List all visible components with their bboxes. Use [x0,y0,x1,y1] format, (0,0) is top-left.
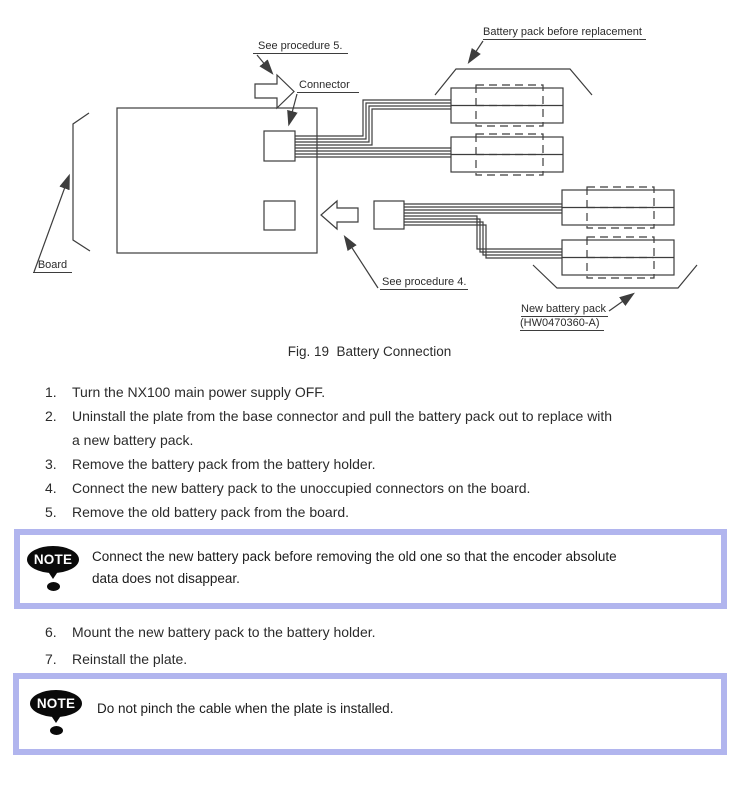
label-see-procedure-4: See procedure 4. [380,276,468,290]
step-text: Turn the NX100 main power supply OFF. [72,380,612,404]
label-board: Board [33,259,72,273]
connector-unoccupied [264,201,295,230]
figure-caption: Fig. 19 Battery Connection [0,344,739,359]
manual-page: See procedure 5. Connector Battery pack … [0,0,739,787]
step-1: 1. Turn the NX100 main power supply OFF. [45,380,612,404]
bracket-board [73,113,90,251]
note-2-line-1: Do not pinch the cable when the plate is… [97,698,707,720]
step-2: 2. Uninstall the plate from the base con… [45,404,612,452]
leader-see-procedure-4 [345,237,378,288]
step-number: 1. [45,380,72,404]
new-pack-connector [374,201,404,229]
step-number: 6. [45,619,72,646]
label-connector: Connector [297,79,359,93]
battery-pack-new-1 [562,187,674,228]
battery-pack-old-2 [451,134,563,175]
step-text: Uninstall the plate from the base connec… [72,404,612,428]
leader-new-battery-pack [609,294,633,311]
note-bubble-dot-icon [50,726,63,735]
step-6: 6. Mount the new battery pack to the bat… [45,619,376,646]
step-text: Connect the new battery pack to the unoc… [72,476,612,500]
procedure4-block-arrow-icon [321,201,358,229]
label-new-battery-pack: New battery pack [521,303,608,317]
step-5: 5. Remove the old battery pack from the … [45,500,612,524]
step-number: 4. [45,476,72,500]
note-icon: NOTE [27,546,79,591]
step-text: a new battery pack. [72,428,612,452]
step-text: Remove the battery pack from the battery… [72,452,612,476]
note-bubble-dot-icon [47,582,60,591]
wires-old-packs [295,100,451,157]
step-number: 3. [45,452,72,476]
procedure-steps-6-7: 6. Mount the new battery pack to the bat… [45,619,376,673]
label-battery-pack-before-replacement: Battery pack before replacement [483,26,646,40]
step-3: 3. Remove the battery pack from the batt… [45,452,612,476]
note-2-text: Do not pinch the cable when the plate is… [97,698,707,720]
note-1-line-2: data does not disappear. [92,568,712,590]
step-number: 7. [45,646,72,673]
note-bubble-icon: NOTE [30,690,82,717]
label-see-procedure-5: See procedure 5. [253,40,348,54]
note-icon: NOTE [30,690,82,735]
note-bubble-tail-icon [47,570,59,579]
procedure5-block-arrow-icon [255,75,294,108]
board-outline [117,108,317,253]
note-bubble-icon: NOTE [27,546,79,573]
connector-occupied [264,131,295,161]
step-number: 5. [45,500,72,524]
note-1-line-1: Connect the new battery pack before remo… [92,546,712,568]
leader-battery-before [469,41,483,62]
step-text: Mount the new battery pack to the batter… [72,619,376,646]
wires-new-packs [404,204,562,258]
battery-pack-old-1 [451,85,563,126]
battery-pack-new-2 [562,237,674,278]
step-number: 2. [45,404,72,452]
step-7: 7. Reinstall the plate. [45,646,376,673]
note-bubble-tail-icon [50,714,62,723]
leader-see-procedure-5 [257,55,272,73]
battery-connection-diagram [0,0,739,345]
step-text: Reinstall the plate. [72,646,376,673]
leader-connector [289,94,297,124]
procedure-steps-1-5: 1. Turn the NX100 main power supply OFF.… [45,380,612,524]
step-4: 4. Connect the new battery pack to the u… [45,476,612,500]
note-1-text: Connect the new battery pack before remo… [92,546,712,590]
step-text: Remove the old battery pack from the boa… [72,500,612,524]
bracket-new-packs [533,265,697,288]
bracket-old-packs [435,69,592,95]
leader-board [34,176,69,272]
label-new-battery-code: (HW0470360-A) [520,317,604,331]
